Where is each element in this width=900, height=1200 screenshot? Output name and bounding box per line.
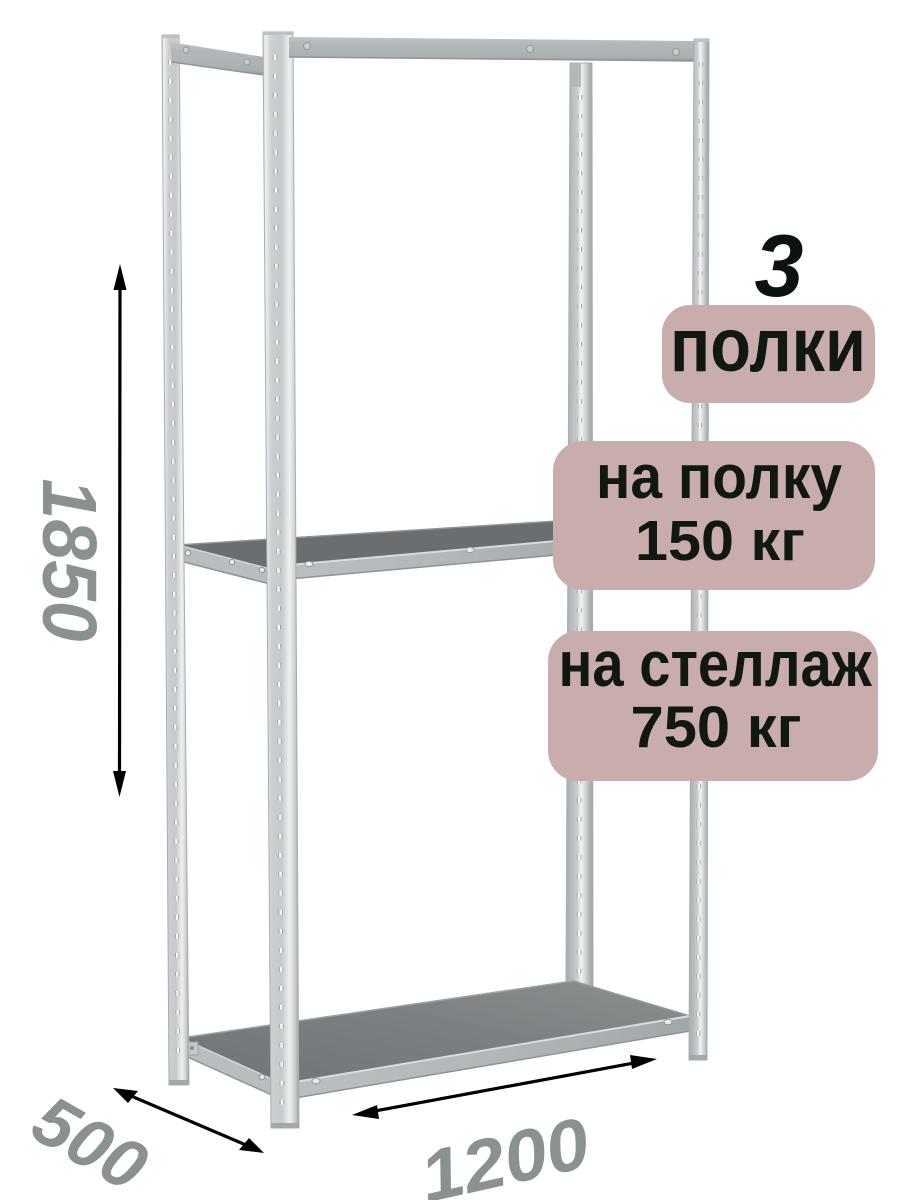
svg-text:1850: 1850 (26, 479, 112, 642)
svg-text:на стеллаж: на стеллаж (559, 628, 873, 700)
svg-text:750 кг: 750 кг (631, 695, 802, 760)
svg-text:3: 3 (755, 216, 804, 315)
svg-text:150 кг: 150 кг (635, 509, 805, 573)
svg-text:на полку: на полку (596, 443, 842, 512)
svg-text:полки: полки (670, 303, 866, 388)
